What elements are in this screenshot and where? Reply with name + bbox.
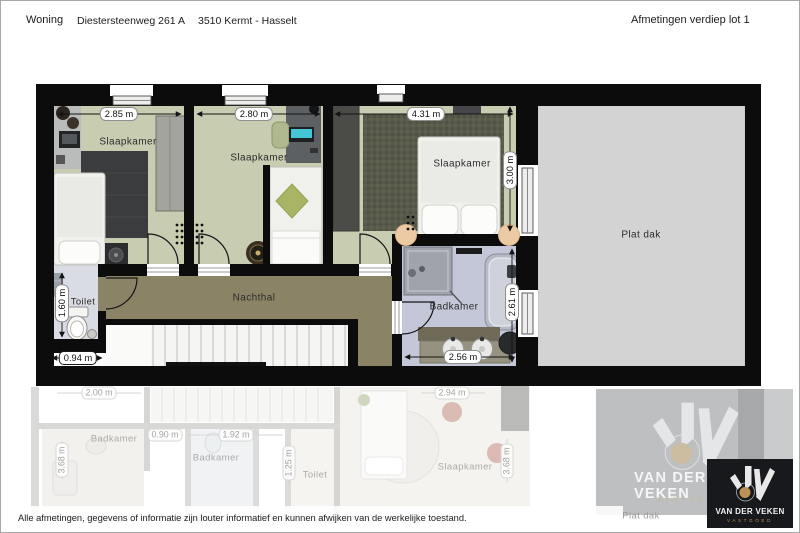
dim-slaapkamer-left-width: 2.85 m [100, 107, 138, 121]
agency-logo-tagline: VASTGOED [727, 518, 773, 523]
toilet-bowl [67, 307, 88, 340]
gf-dim-mid-b: 1.92 m [219, 429, 254, 442]
gf-dim-bedroom-width: 2.94 m [435, 387, 470, 400]
bed-double [418, 137, 500, 241]
room-label-slaapkamer-left: Slaapkamer [99, 137, 156, 148]
dim-slaapkamer-mid-width: 2.80 m [235, 107, 273, 121]
ground-floor-shadow-plan [31, 383, 530, 523]
room-label-slaapkamer-mid: Slaapkamer [230, 153, 287, 164]
agency-logo-badge: VAN DER VEKEN VASTGOED [707, 459, 793, 528]
dim-slaapkamer-right-width: 4.31 m [407, 107, 445, 121]
gf-label-plat-dak: Plat dak [622, 511, 660, 522]
gf-dim-left-depth: 3.68 m [56, 443, 69, 478]
staircase [103, 319, 348, 367]
dim-slaapkamer-right-depth: 3.00 m [503, 151, 517, 189]
gf-label-slaapkamer: Slaapkamer [438, 462, 493, 473]
dim-badkamer-depth: 2.61 m [505, 283, 519, 321]
room-label-badkamer: Badkamer [430, 302, 479, 313]
dim-badkamer-width: 2.56 m [444, 350, 482, 364]
gf-label-badkamer-a: Badkamer [91, 434, 138, 445]
room-label-toilet: Toilet [71, 297, 96, 308]
agency-logo-name: VAN DER VEKEN [715, 507, 784, 516]
disclaimer-text: Alle afmetingen, gegevens of informatie … [18, 513, 467, 523]
dim-toilet-width: 0.94 m [59, 351, 97, 365]
dim-toilet-depth: 1.60 m [55, 284, 69, 322]
gf-dim-toilet-depth: 1.25 m [283, 446, 296, 481]
bed-single-mid [270, 167, 322, 264]
bed-single-left [54, 173, 105, 265]
gf-label-badkamer-b: Badkamer [193, 453, 240, 464]
gf-dim-bedroom-depth: 3.68 m [501, 444, 514, 479]
room-label-plat-dak: Plat dak [621, 230, 660, 241]
gf-dim-left-width: 2.00 m [82, 387, 117, 400]
gf-label-toilet: Toilet [303, 470, 328, 481]
room-label-slaapkamer-right: Slaapkamer [433, 159, 490, 170]
floorplan-page: Woning Diestersteenweg 261 A 3510 Kermt … [0, 0, 800, 533]
room-label-nachthal: Nachthal [233, 293, 276, 304]
bedroom-right-furniture [333, 104, 504, 241]
agency-logo-icon [723, 462, 777, 506]
gf-dim-mid-a: 0.90 m [148, 429, 183, 442]
